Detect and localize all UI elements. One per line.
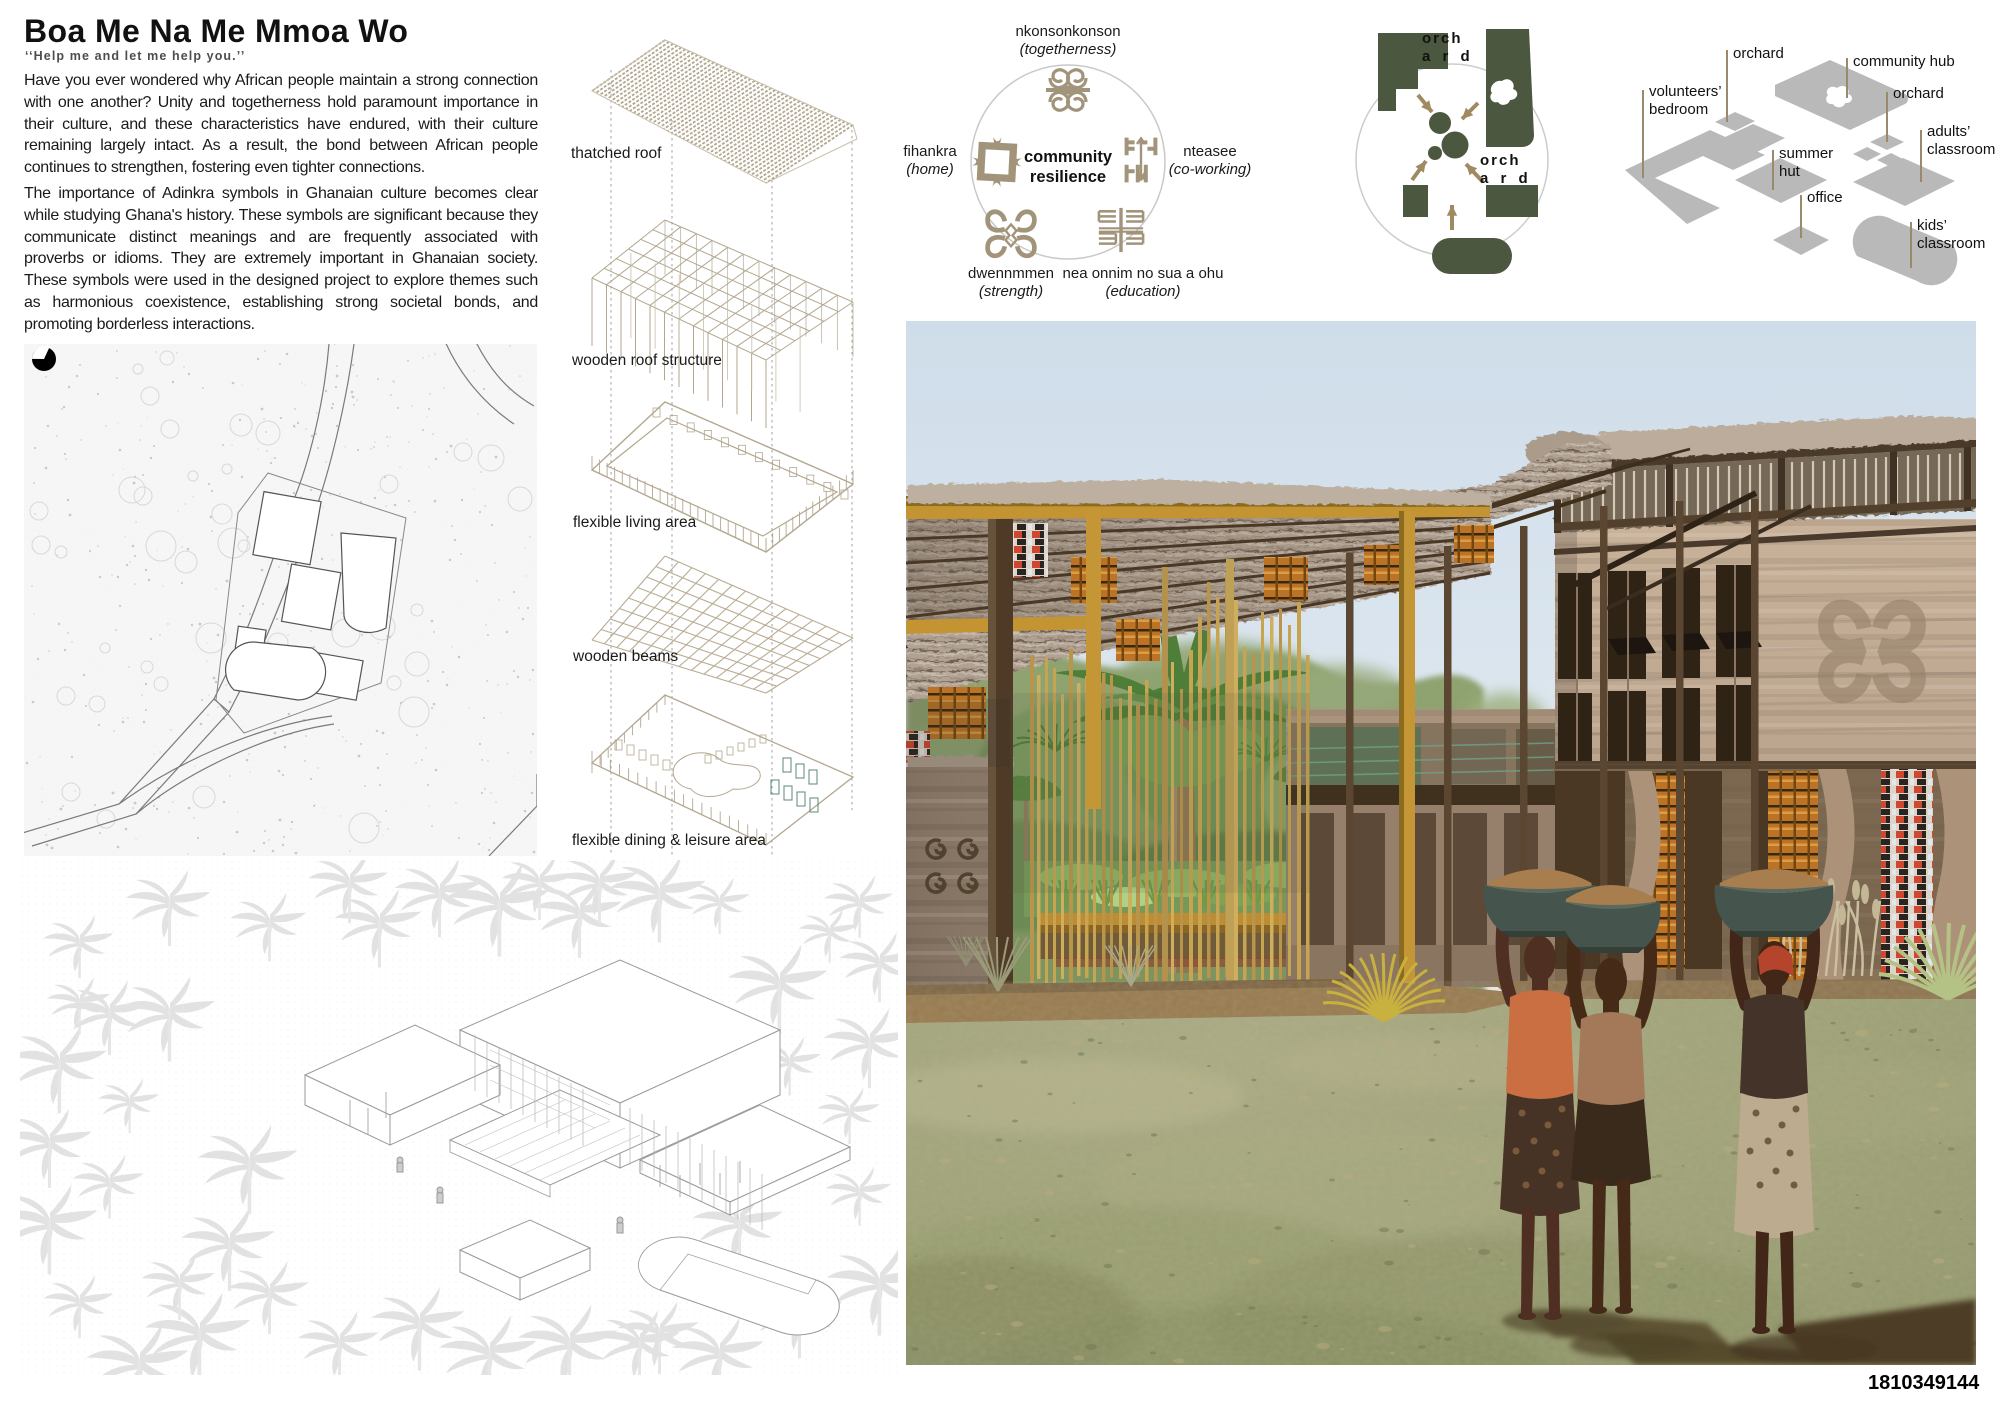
svg-text:classroom: classroom <box>1917 235 1985 252</box>
svg-text:classroom: classroom <box>1927 141 1995 158</box>
svg-text:fihankra: fihankra <box>903 143 957 160</box>
svg-text:(togetherness): (togetherness) <box>1020 41 1117 58</box>
svg-text:wooden roof structure: wooden roof structure <box>571 352 722 369</box>
svg-text:hut: hut <box>1779 163 1801 180</box>
svg-text:flexible living area: flexible living area <box>573 514 697 531</box>
svg-text:nea onnim no sua a ohu: nea onnim no sua a ohu <box>1063 265 1224 282</box>
svg-text:dwennmmen: dwennmmen <box>968 265 1054 282</box>
svg-text:(strength): (strength) <box>979 283 1043 300</box>
svg-text:bedroom: bedroom <box>1649 101 1708 118</box>
svg-text:thatched roof: thatched roof <box>571 145 662 162</box>
svg-text:orchard: orchard <box>1733 45 1784 62</box>
svg-text:adults’: adults’ <box>1927 123 1970 140</box>
svg-text:a r d: a r d <box>1422 48 1474 65</box>
svg-text:orchard: orchard <box>1893 85 1944 102</box>
svg-text:(education): (education) <box>1105 283 1180 300</box>
svg-text:nkonsonkonson: nkonsonkonson <box>1015 23 1120 40</box>
svg-text:community: community <box>1024 148 1113 166</box>
svg-text:volunteers’: volunteers’ <box>1649 83 1722 100</box>
svg-text:(home): (home) <box>906 161 954 178</box>
svg-text:nteasee: nteasee <box>1183 143 1236 160</box>
svg-text:orch: orch <box>1480 152 1521 169</box>
svg-text:resilience: resilience <box>1030 168 1106 186</box>
svg-text:(co-working): (co-working) <box>1169 161 1252 178</box>
svg-text:summer: summer <box>1779 145 1833 162</box>
svg-text:wooden beams: wooden beams <box>572 648 678 665</box>
svg-text:orch: orch <box>1422 30 1463 47</box>
svg-text:office: office <box>1807 189 1843 206</box>
svg-text:kids’: kids’ <box>1917 217 1947 234</box>
svg-text:community hub: community hub <box>1853 53 1955 70</box>
svg-text:a r d: a r d <box>1480 170 1532 187</box>
svg-text:flexible dining & leisure area: flexible dining & leisure area <box>572 832 766 849</box>
